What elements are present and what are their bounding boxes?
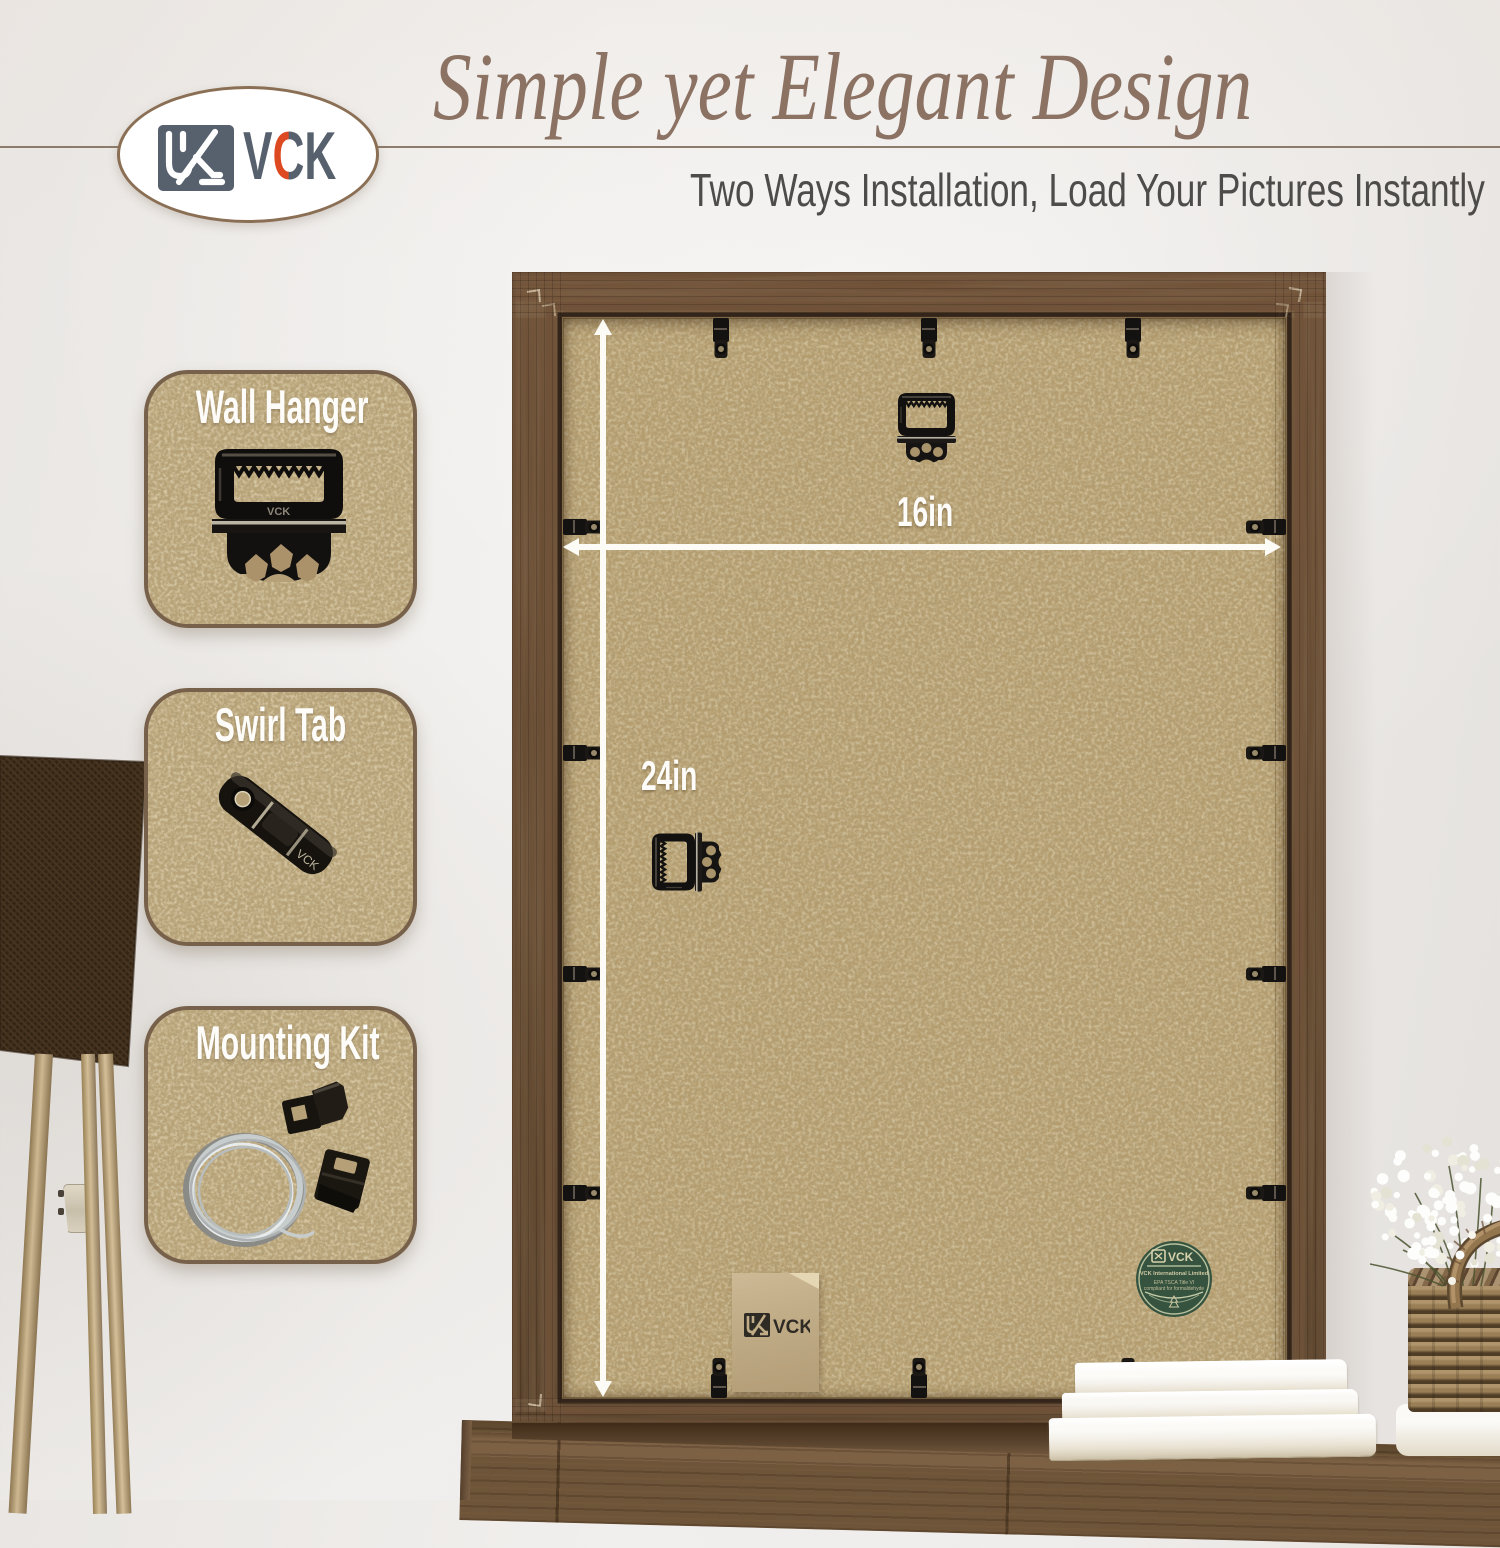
svg-text:compliant for formaldehyde: compliant for formaldehyde <box>1144 1286 1205 1292</box>
svg-text:VCK International Limited: VCK International Limited <box>1140 1271 1209 1277</box>
svg-text:VCK: VCK <box>267 506 290 518</box>
svg-text:VCK: VCK <box>773 1317 810 1338</box>
svg-text:VCK: VCK <box>1168 1250 1194 1264</box>
